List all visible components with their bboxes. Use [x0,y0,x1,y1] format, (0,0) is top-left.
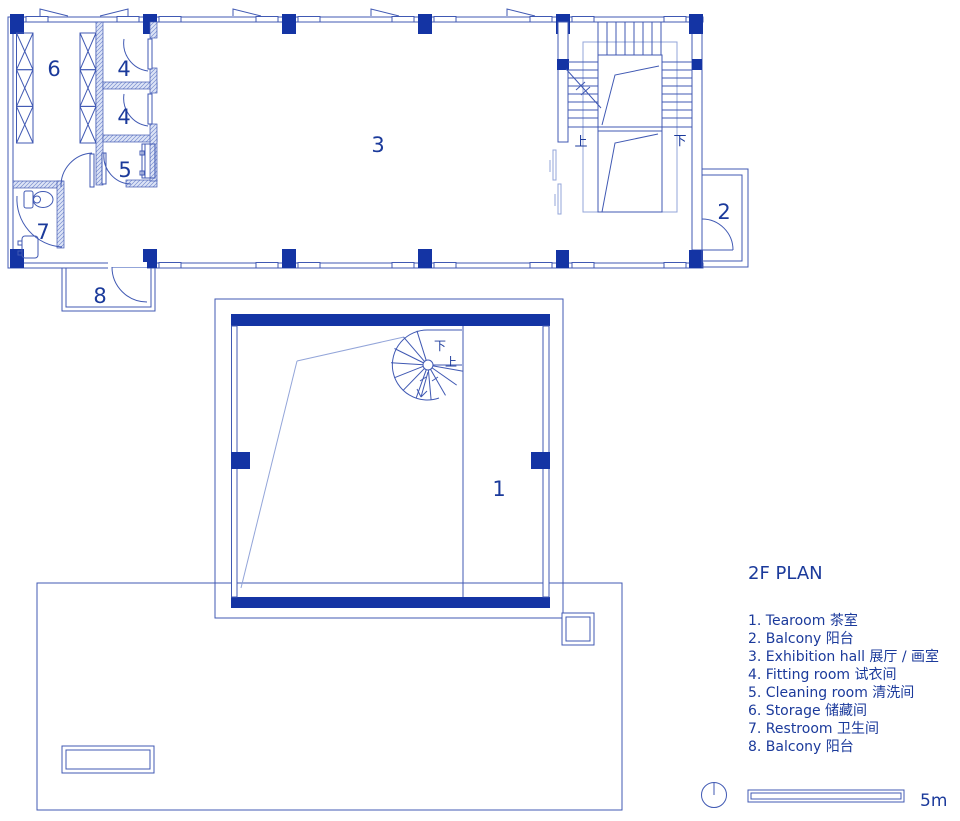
plan-title: 2F PLAN [748,563,823,584]
corridor-door [61,153,94,187]
balcony-bottom-door [112,267,147,302]
room-label-exhibition: 3 [371,133,384,157]
main-staircase: 上 下 [566,22,692,212]
spiral-direction-arrow [417,372,438,397]
room-label-cleaning: 5 [118,158,131,182]
restroom-sink [18,236,38,258]
spiral-down-label: 下 [434,339,446,353]
spiral-up-label: 上 [445,355,457,369]
stair-flight-upper [602,66,659,125]
lower-footprint-outline [37,583,622,810]
legend: 2F PLAN 1. Tearoom 茶室 2. Balcony 阳台 3. E… [748,563,939,755]
spiral-stair: 下 上 [391,330,463,400]
room-label-tearoom: 1 [492,477,505,501]
left-wall [8,17,13,268]
stair-well [598,55,662,212]
sliding-door-panel [558,184,561,214]
legend-item-8: 8. Balcony 阳台 [748,739,854,755]
room-label-fitting-a: 4 [117,57,130,81]
sliding-door-panel [553,150,556,180]
stair-treads-top [598,22,661,55]
main-building: 上 下 2 8 3 4 4 5 6 [8,9,748,311]
legend-item-4: 4. Fitting room 试衣间 [748,667,896,683]
balcony-bottom: 8 [62,262,155,311]
stair-down-label: 下 [673,134,686,149]
plan-canvas: 下 上 1 [0,0,960,821]
roof-slope-line [241,361,297,588]
stair-flight-lower [602,134,658,212]
right-wall [692,17,702,250]
room-label-storage: 6 [47,57,60,81]
scale-bar [748,790,904,802]
balcony-right: 2 [702,169,748,267]
tearoom-bottom-wall [231,597,550,608]
roof-slope-line [297,337,404,361]
room-label-restroom: 7 [36,220,49,244]
room-label-fitting-b: 4 [117,105,130,129]
scale-label: 5m [920,791,947,811]
stair-up-label: 上 [574,135,587,150]
scale-group: 5m [702,783,948,812]
legend-item-6: 6. Storage 储藏间 [748,703,867,719]
legend-item-2: 2. Balcony 阳台 [748,631,854,647]
chimney [562,613,594,645]
tearoom-top-wall [231,314,550,326]
legend-item-1: 1. Tearoom 茶室 [748,612,858,629]
legend-item-5: 5. Cleaning room 清洗间 [748,685,914,701]
tearoom-left-column [231,452,250,469]
north-indicator-icon [702,783,727,808]
legend-item-7: 7. Restroom 卫生间 [748,721,879,737]
room-label-balcony-right: 2 [717,200,730,224]
floor-plan-page: 下 上 1 [0,0,960,821]
top-wall [8,17,703,22]
partition-walls [13,22,157,248]
storage-shelving [17,33,97,143]
toilet [24,191,53,208]
legend-item-3: 3. Exhibition hall 展厅 / 画室 [748,648,939,665]
tearoom-block: 下 上 1 [215,299,563,618]
tearoom-right-column [531,452,550,469]
room-label-balcony-bottom: 8 [93,284,106,308]
spiral-center-post [423,360,433,370]
